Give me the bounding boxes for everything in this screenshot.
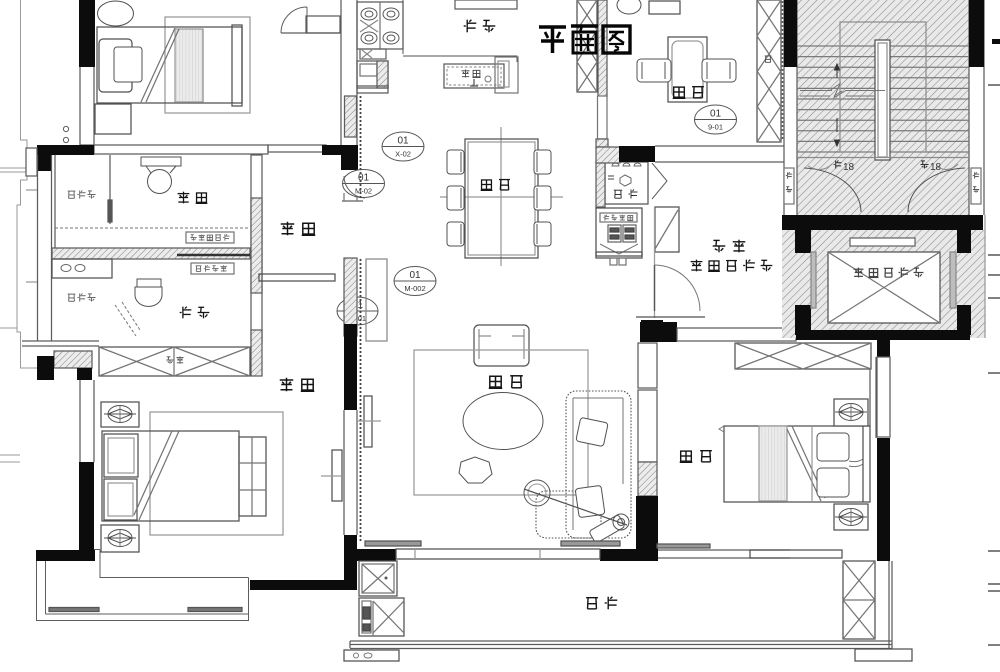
svg-text:01: 01 xyxy=(409,270,421,281)
svg-text:01: 01 xyxy=(710,109,722,120)
svg-text:M-02: M-02 xyxy=(355,187,372,196)
svg-text:9-01: 9-01 xyxy=(708,123,723,132)
svg-text:M-002: M-002 xyxy=(404,284,425,293)
svg-text:X-02: X-02 xyxy=(395,150,411,159)
svg-text:01: 01 xyxy=(397,136,409,147)
svg-text:01: 01 xyxy=(358,173,370,184)
svg-text:18: 18 xyxy=(930,162,942,173)
svg-text:18: 18 xyxy=(843,162,855,173)
